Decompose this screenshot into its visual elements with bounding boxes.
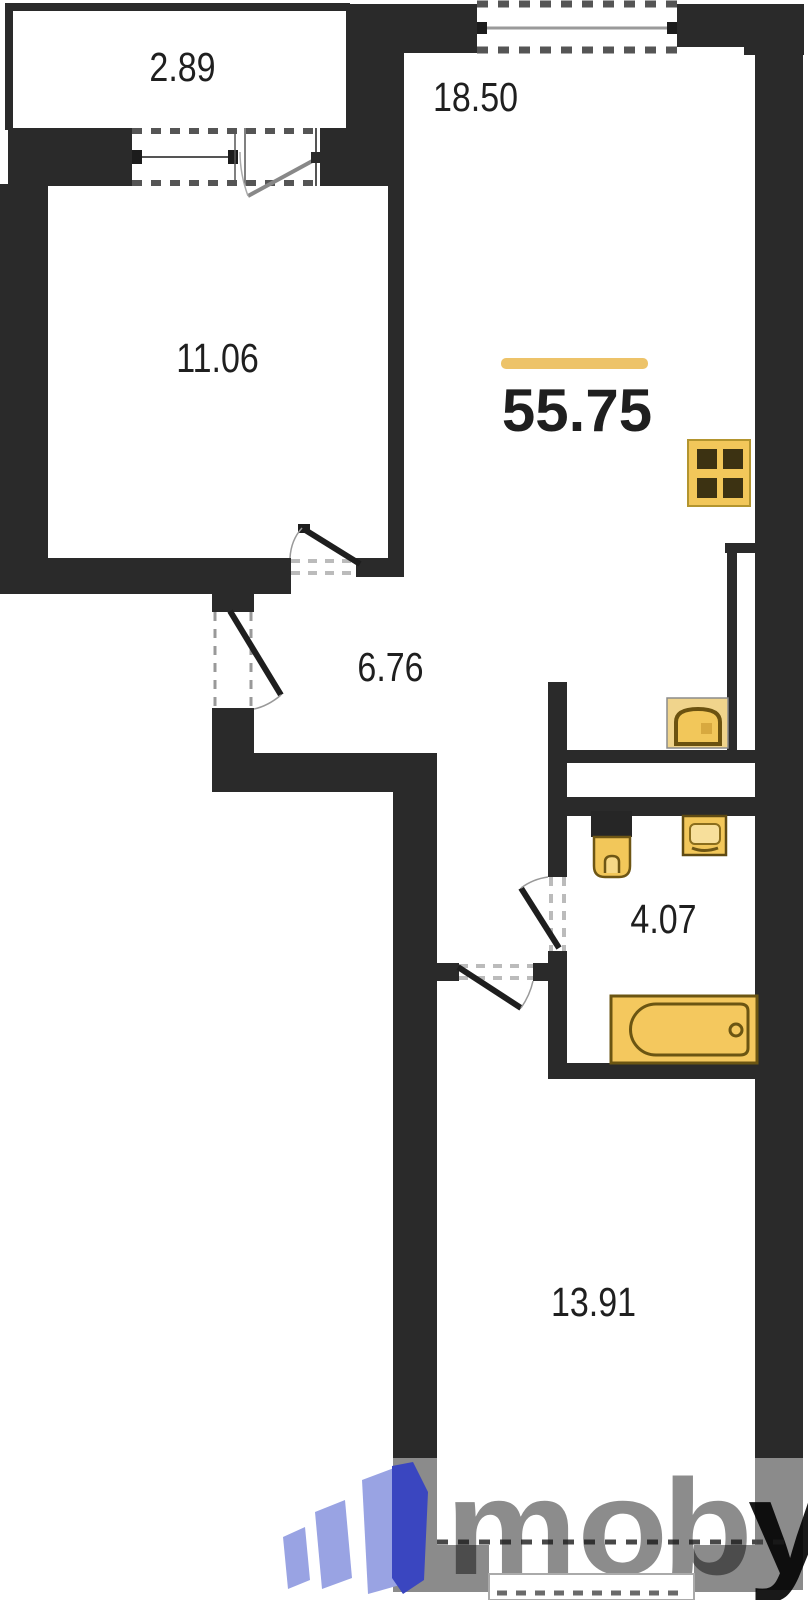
svg-text:13.91: 13.91	[551, 1279, 636, 1325]
svg-text:55.75: 55.75	[502, 377, 652, 444]
svg-text:6.76: 6.76	[357, 644, 423, 690]
svg-text:y: y	[748, 1452, 808, 1600]
svg-text:11.06: 11.06	[176, 335, 259, 381]
svg-text:4.07: 4.07	[630, 896, 696, 942]
svg-text:18.50: 18.50	[433, 74, 518, 120]
svg-text:2.89: 2.89	[149, 44, 215, 90]
